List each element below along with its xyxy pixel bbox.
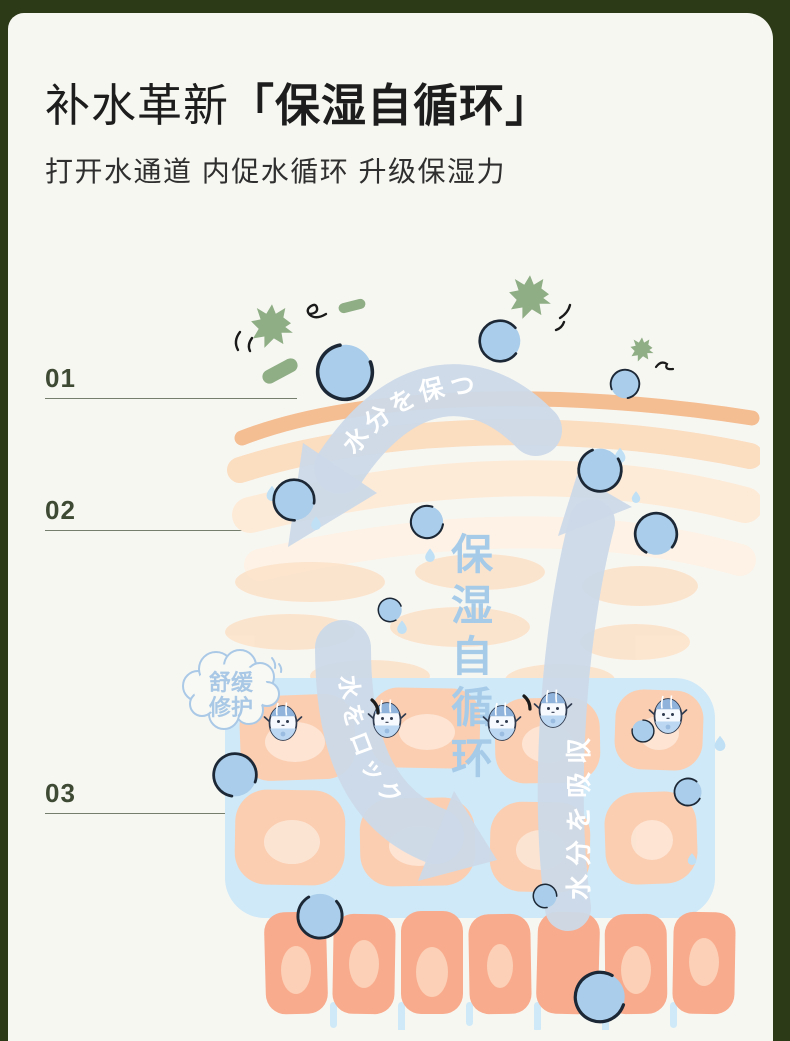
allergen-spiky-icon (630, 337, 653, 361)
cloud-label-line1: 舒缓 (209, 670, 254, 695)
skin-diagram: 水分を保つ 水分を吸収 水をロック 保 湿 自 循 环 (180, 270, 760, 1030)
center-caption-char-1: 保 (451, 531, 494, 578)
center-caption-char-5: 环 (451, 735, 493, 782)
cloud-label-line2: 修护 (208, 695, 253, 720)
center-caption: 保 湿 自 循 环 (451, 531, 494, 782)
bacteria-bean-icon (338, 298, 367, 314)
cloud-accent-marks (272, 658, 281, 672)
squiggle-icon (656, 363, 673, 370)
arrow-absorb-moisture-label: 水分を吸収 (564, 730, 594, 900)
allergen-spiky-icon (251, 304, 293, 348)
motion-lines-icon (556, 305, 570, 330)
water-drop (471, 312, 528, 369)
center-caption-char-4: 循 (451, 684, 493, 731)
water-drop (274, 480, 315, 521)
title-prefix: 补水革新 (45, 80, 229, 131)
motion-lines-icon (236, 332, 252, 351)
page-subtitle: 打开水通道 内促水循环 升级保湿力 (45, 150, 551, 190)
center-caption-char-3: 自 (451, 633, 493, 680)
bacteria-bean-icon (260, 356, 300, 386)
header: 补水革新「保湿自循环」 打开水通道 内促水循环 升级保湿力 (45, 69, 551, 190)
squiggle-icon (308, 305, 326, 317)
page-panel: 补水革新「保湿自循环」 打开水通道 内促水循环 升级保湿力 01 02 03 (8, 13, 773, 1041)
page-title: 补水革新「保湿自循环」 (45, 69, 551, 134)
allergen-spiky-icon (509, 275, 551, 319)
title-quoted: 「保湿自循环」 (229, 80, 551, 131)
center-caption-char-2: 湿 (451, 582, 493, 629)
water-drop (632, 720, 654, 742)
